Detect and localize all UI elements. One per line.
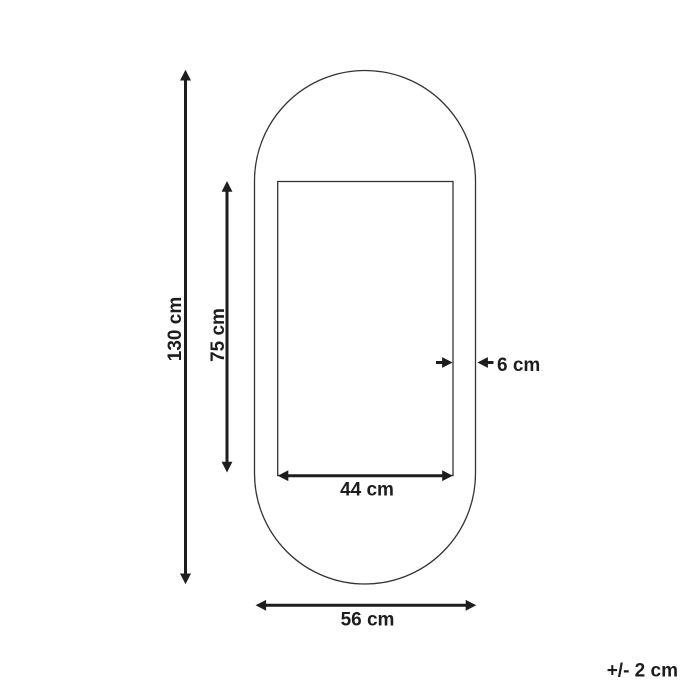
- svg-text:56 cm: 56 cm: [341, 610, 395, 631]
- svg-text:44 cm: 44 cm: [340, 480, 394, 501]
- svg-text:6 cm: 6 cm: [497, 355, 540, 376]
- svg-text:75 cm: 75 cm: [208, 308, 229, 362]
- svg-text:130 cm: 130 cm: [165, 297, 186, 361]
- svg-text:+/- 2 cm: +/- 2 cm: [607, 661, 678, 682]
